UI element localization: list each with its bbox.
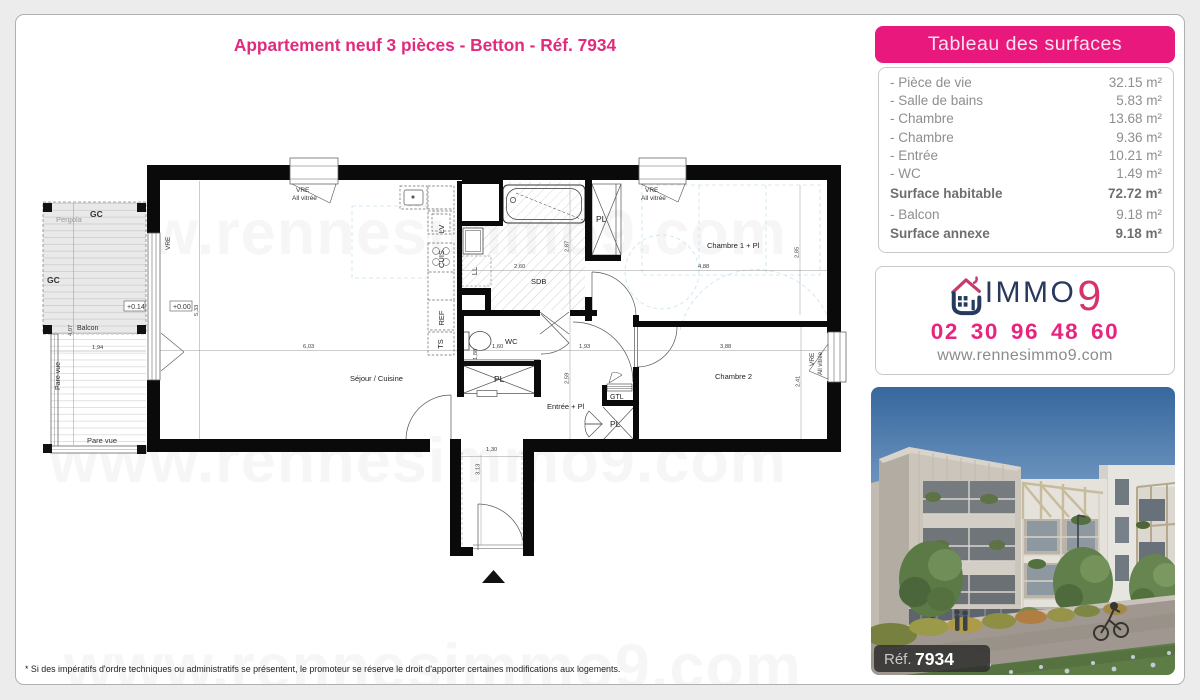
svg-text:Balcon: Balcon xyxy=(77,325,99,332)
svg-text:GTL: GTL xyxy=(610,394,624,401)
svg-text:GC: GC xyxy=(47,275,60,285)
svg-text:VRE: VRE xyxy=(645,187,659,194)
svg-text:Séjour / Cuisine: Séjour / Cuisine xyxy=(350,374,403,383)
svg-text:2,60: 2,60 xyxy=(514,264,525,270)
svg-text:+0.00: +0.00 xyxy=(173,304,191,311)
svg-text:1,60: 1,60 xyxy=(492,344,503,350)
svg-text:Réf.: Réf. xyxy=(884,651,912,668)
svg-text:2,59: 2,59 xyxy=(565,373,571,384)
svg-text:WC: WC xyxy=(505,337,518,346)
svg-text:SDB: SDB xyxy=(531,277,546,286)
svg-text:PL: PL xyxy=(494,374,505,384)
svg-text:Pergola: Pergola xyxy=(56,215,83,224)
svg-text:Chambre 1 + Pl: Chambre 1 + Pl xyxy=(707,241,760,250)
svg-text:1,88: 1,88 xyxy=(473,349,479,360)
svg-text:2,85: 2,85 xyxy=(795,247,801,258)
svg-text:All vitrée: All vitrée xyxy=(641,195,666,202)
svg-text:7934: 7934 xyxy=(915,649,954,669)
svg-text:3,88: 3,88 xyxy=(720,344,731,350)
svg-text:3,13: 3,13 xyxy=(476,464,482,475)
svg-text:PL: PL xyxy=(596,214,607,224)
svg-text:Entrée + Pl: Entrée + Pl xyxy=(547,402,585,411)
svg-text:CUIS.: CUIS. xyxy=(437,248,446,268)
svg-text:LL: LL xyxy=(470,267,479,275)
svg-text:LV: LV xyxy=(437,225,446,234)
svg-text:+0.14: +0.14 xyxy=(127,304,145,311)
svg-text:4,88: 4,88 xyxy=(698,264,709,270)
svg-text:REF: REF xyxy=(437,310,446,325)
svg-text:1,94: 1,94 xyxy=(92,345,104,351)
svg-text:VRE: VRE xyxy=(809,352,816,366)
svg-text:Pare vue: Pare vue xyxy=(87,436,117,445)
svg-text:2,41: 2,41 xyxy=(796,376,802,387)
svg-text:1,30: 1,30 xyxy=(486,447,497,453)
svg-text:Pare vue: Pare vue xyxy=(55,362,62,390)
svg-text:6,03: 6,03 xyxy=(303,344,314,350)
svg-text:All vitrée: All vitrée xyxy=(292,195,317,202)
svg-text:1,93: 1,93 xyxy=(579,344,590,350)
svg-text:5,33: 5,33 xyxy=(194,305,200,316)
svg-text:2,87: 2,87 xyxy=(565,241,571,252)
svg-text:PL: PL xyxy=(610,419,621,429)
svg-text:All vitrée: All vitrée xyxy=(818,351,824,375)
svg-text:VRE: VRE xyxy=(165,236,172,250)
svg-text:4,07: 4,07 xyxy=(68,325,74,336)
svg-text:GC: GC xyxy=(90,209,103,219)
svg-text:TS: TS xyxy=(436,339,445,349)
svg-text:VRE: VRE xyxy=(296,187,310,194)
svg-text:Chambre 2: Chambre 2 xyxy=(715,372,752,381)
